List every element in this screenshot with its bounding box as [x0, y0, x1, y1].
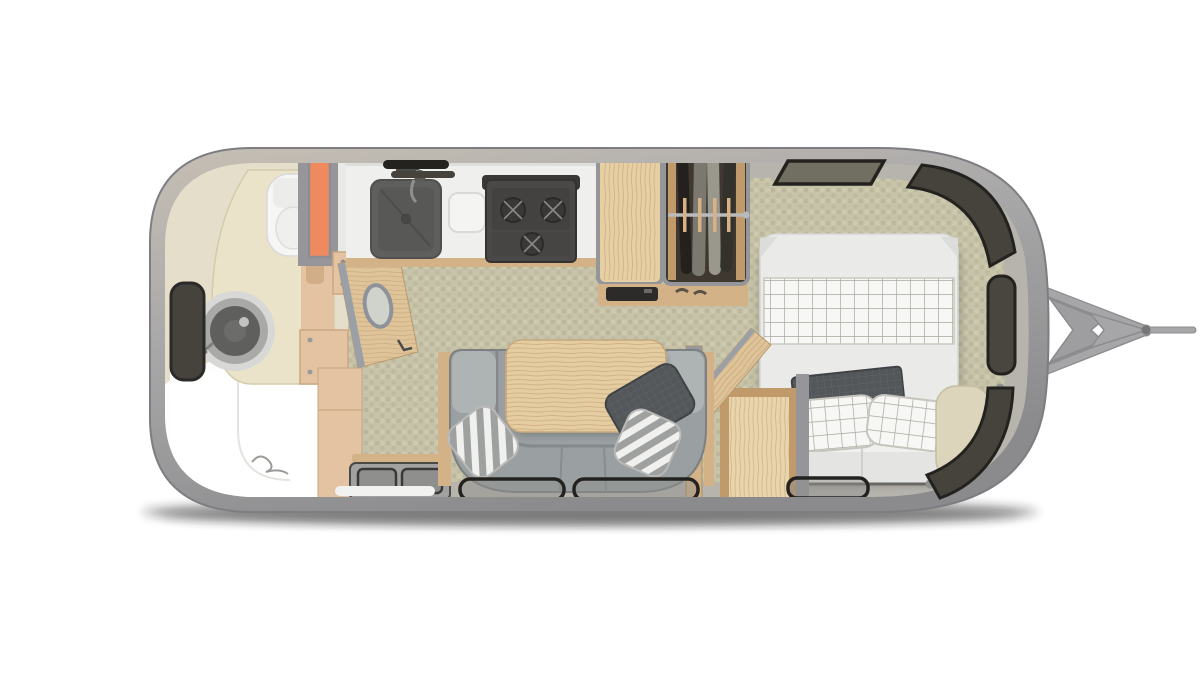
floorplan-stage — [0, 0, 1200, 675]
cabinet-hinge-1 — [308, 338, 313, 343]
cabinet-hinge-2 — [308, 370, 313, 375]
refrigerator-woodgrain — [602, 152, 658, 280]
wardrobe — [664, 148, 750, 294]
kitchen-window-slat-1 — [383, 160, 449, 169]
bottom-window-1 — [460, 479, 564, 500]
orange-linen-niche — [309, 157, 330, 257]
bathroom-round-sink — [195, 291, 275, 371]
burner-1 — [501, 198, 525, 222]
hitch-tongue-rod — [1146, 327, 1196, 333]
kitchen-window-slat-2 — [391, 171, 455, 178]
front-window-middle — [988, 276, 1015, 374]
bedroom-top-window — [775, 161, 884, 184]
cutting-board — [449, 193, 485, 232]
sofa-arm-cap-left — [452, 351, 496, 413]
bottom-window-2 — [574, 479, 698, 500]
hitch-coupler-ball — [1142, 326, 1151, 335]
cabin-interior — [138, 148, 1029, 518]
dinette — [438, 340, 714, 492]
entry-threshold — [352, 454, 450, 463]
bottom-window-3 — [788, 478, 868, 498]
burner-3 — [521, 233, 543, 255]
burner-2 — [541, 198, 565, 222]
kitchen — [346, 152, 598, 267]
closet-box — [720, 388, 798, 510]
checkered-blanket — [764, 278, 954, 344]
three-burner-cooktop — [482, 175, 580, 262]
vent-grille-handle — [644, 289, 652, 293]
floorplan-svg — [0, 0, 1200, 675]
entry — [340, 454, 450, 500]
bathroom-window — [171, 283, 204, 380]
belt-line-windows — [460, 478, 868, 500]
